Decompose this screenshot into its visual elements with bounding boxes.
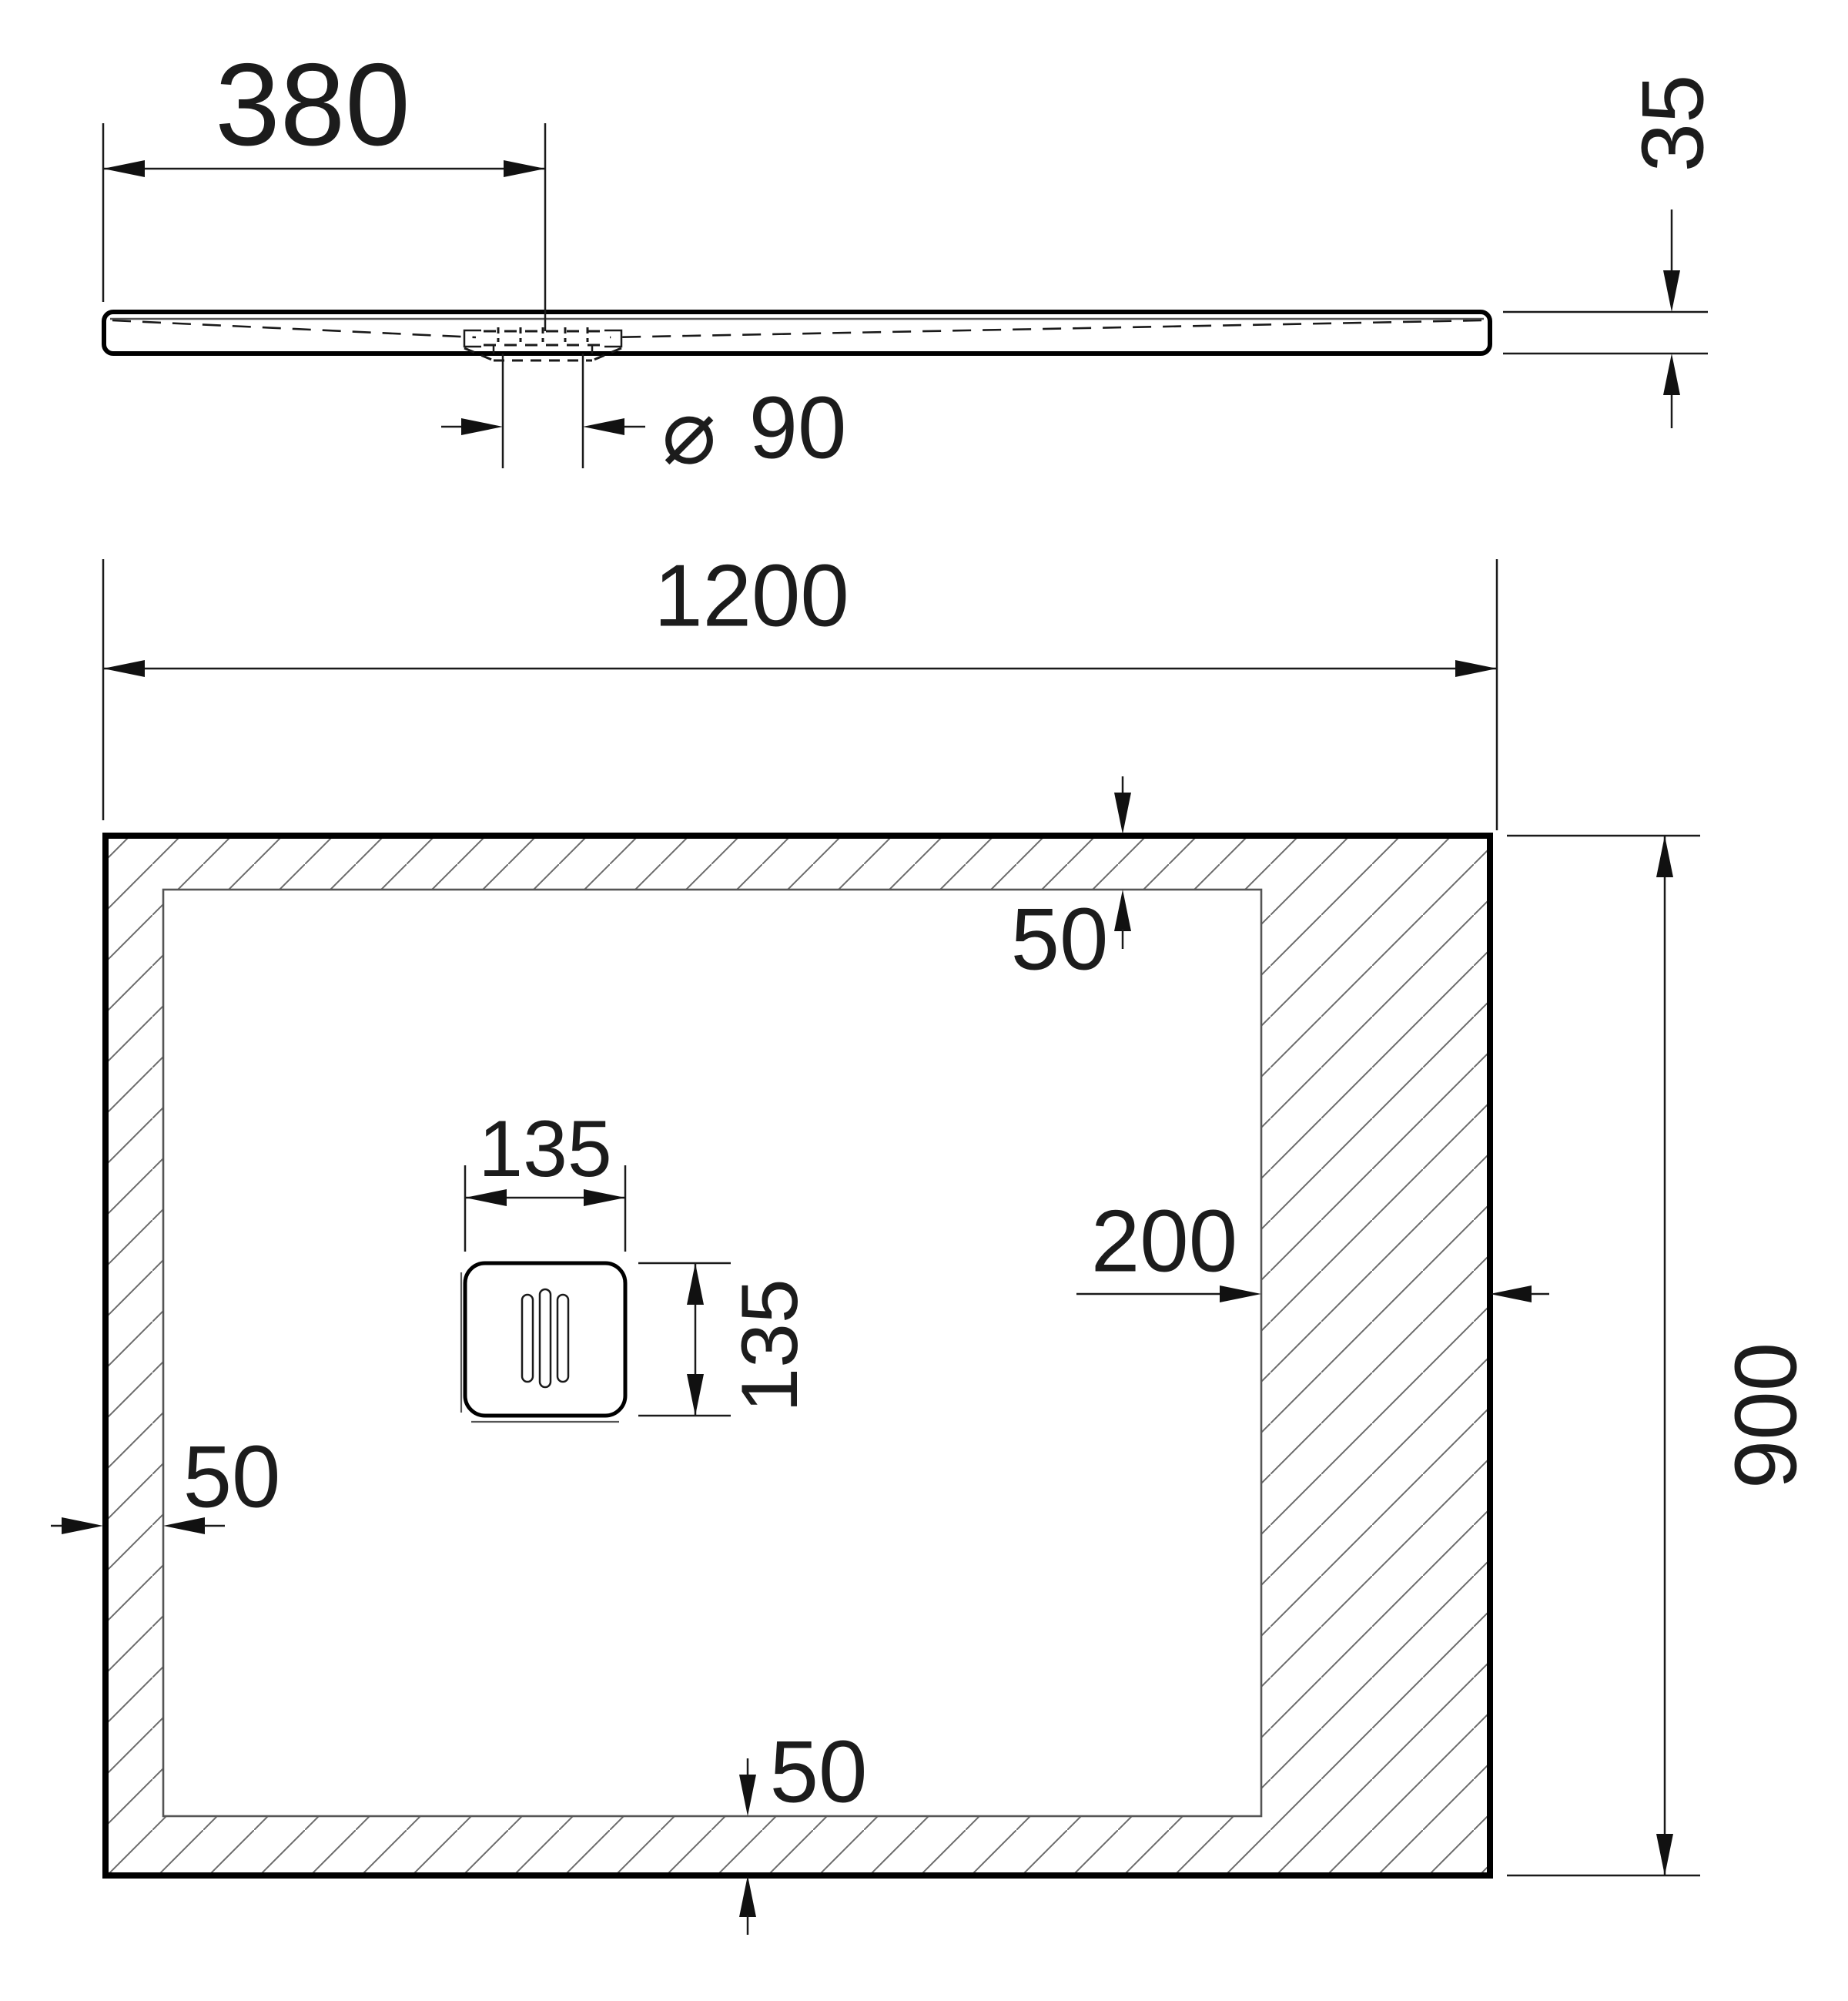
slope-line-left [112, 320, 476, 337]
diameter-icon: ⌀ [661, 378, 716, 484]
grate-slot [557, 1295, 568, 1382]
arrowhead-down [1656, 1834, 1673, 1875]
arrowhead-right-pointing [461, 418, 503, 435]
dim-90-label: 90 [749, 380, 847, 478]
dimension-1200: 1200 [103, 548, 1497, 831]
section-view: 380 35 ⌀ 90 [103, 39, 1722, 484]
flange-hook-left [464, 330, 481, 347]
dim-380-label: 380 [215, 39, 410, 170]
arrowhead-right [504, 160, 545, 177]
arrowhead-left-pointing [1490, 1285, 1532, 1302]
dim-135-height-label: 135 [725, 1279, 815, 1413]
dim-50-bottom-label: 50 [770, 1724, 868, 1822]
arrowhead-right-pointing [62, 1517, 103, 1534]
dim-135-width-label: 135 [478, 1104, 612, 1194]
arrowhead-up [687, 1263, 704, 1305]
arrowhead-up [1114, 890, 1131, 931]
tray-inner-boundary [163, 890, 1261, 1816]
dim-35-label: 35 [1625, 75, 1722, 173]
plan-view: 1200 900 50 50 [51, 548, 1816, 1936]
tray-slope-hidden-lines [112, 320, 1481, 337]
arrowhead-up [1663, 354, 1680, 395]
arrowhead-left-pointing [583, 418, 624, 435]
dim-1200-label: 1200 [654, 548, 849, 645]
grate-slot [522, 1295, 533, 1382]
grate-slot [540, 1289, 551, 1387]
arrowhead-down [1663, 270, 1680, 312]
dimension-135-width: 135 [465, 1104, 625, 1252]
dim-200-label: 200 [1091, 1193, 1237, 1291]
dimension-380: 380 [103, 39, 545, 331]
grate-slot-ticks [498, 327, 588, 342]
dim-50-left-label: 50 [183, 1429, 281, 1527]
arrowhead-left [103, 660, 145, 677]
drain-grate [461, 1263, 625, 1422]
flange-hook-right [604, 330, 621, 347]
dimension-drain-diameter-90: ⌀ 90 [441, 354, 846, 484]
dimension-900: 900 [1507, 836, 1816, 1875]
dimension-135-height: 135 [638, 1263, 815, 1416]
arrowhead-up [739, 1875, 756, 1917]
arrowhead-left [103, 160, 145, 177]
arrowhead-up [1656, 836, 1673, 877]
dim-50-top-label: 50 [1011, 891, 1109, 989]
shower-tray-technical-drawing: 380 35 ⌀ 90 [0, 0, 1848, 2001]
slope-line-right [610, 320, 1481, 337]
dim-900-label: 900 [1718, 1342, 1816, 1489]
arrowhead-down [739, 1775, 756, 1816]
arrowhead-right [1455, 660, 1497, 677]
drawing-sheet: 380 35 ⌀ 90 [0, 0, 1848, 2001]
grate-cover-outline [465, 1263, 625, 1416]
arrowhead-down [1114, 793, 1131, 834]
dimension-50-left: 50 [51, 1429, 280, 1535]
arrowhead-down [687, 1374, 704, 1416]
dimension-35: 35 [1503, 75, 1722, 428]
